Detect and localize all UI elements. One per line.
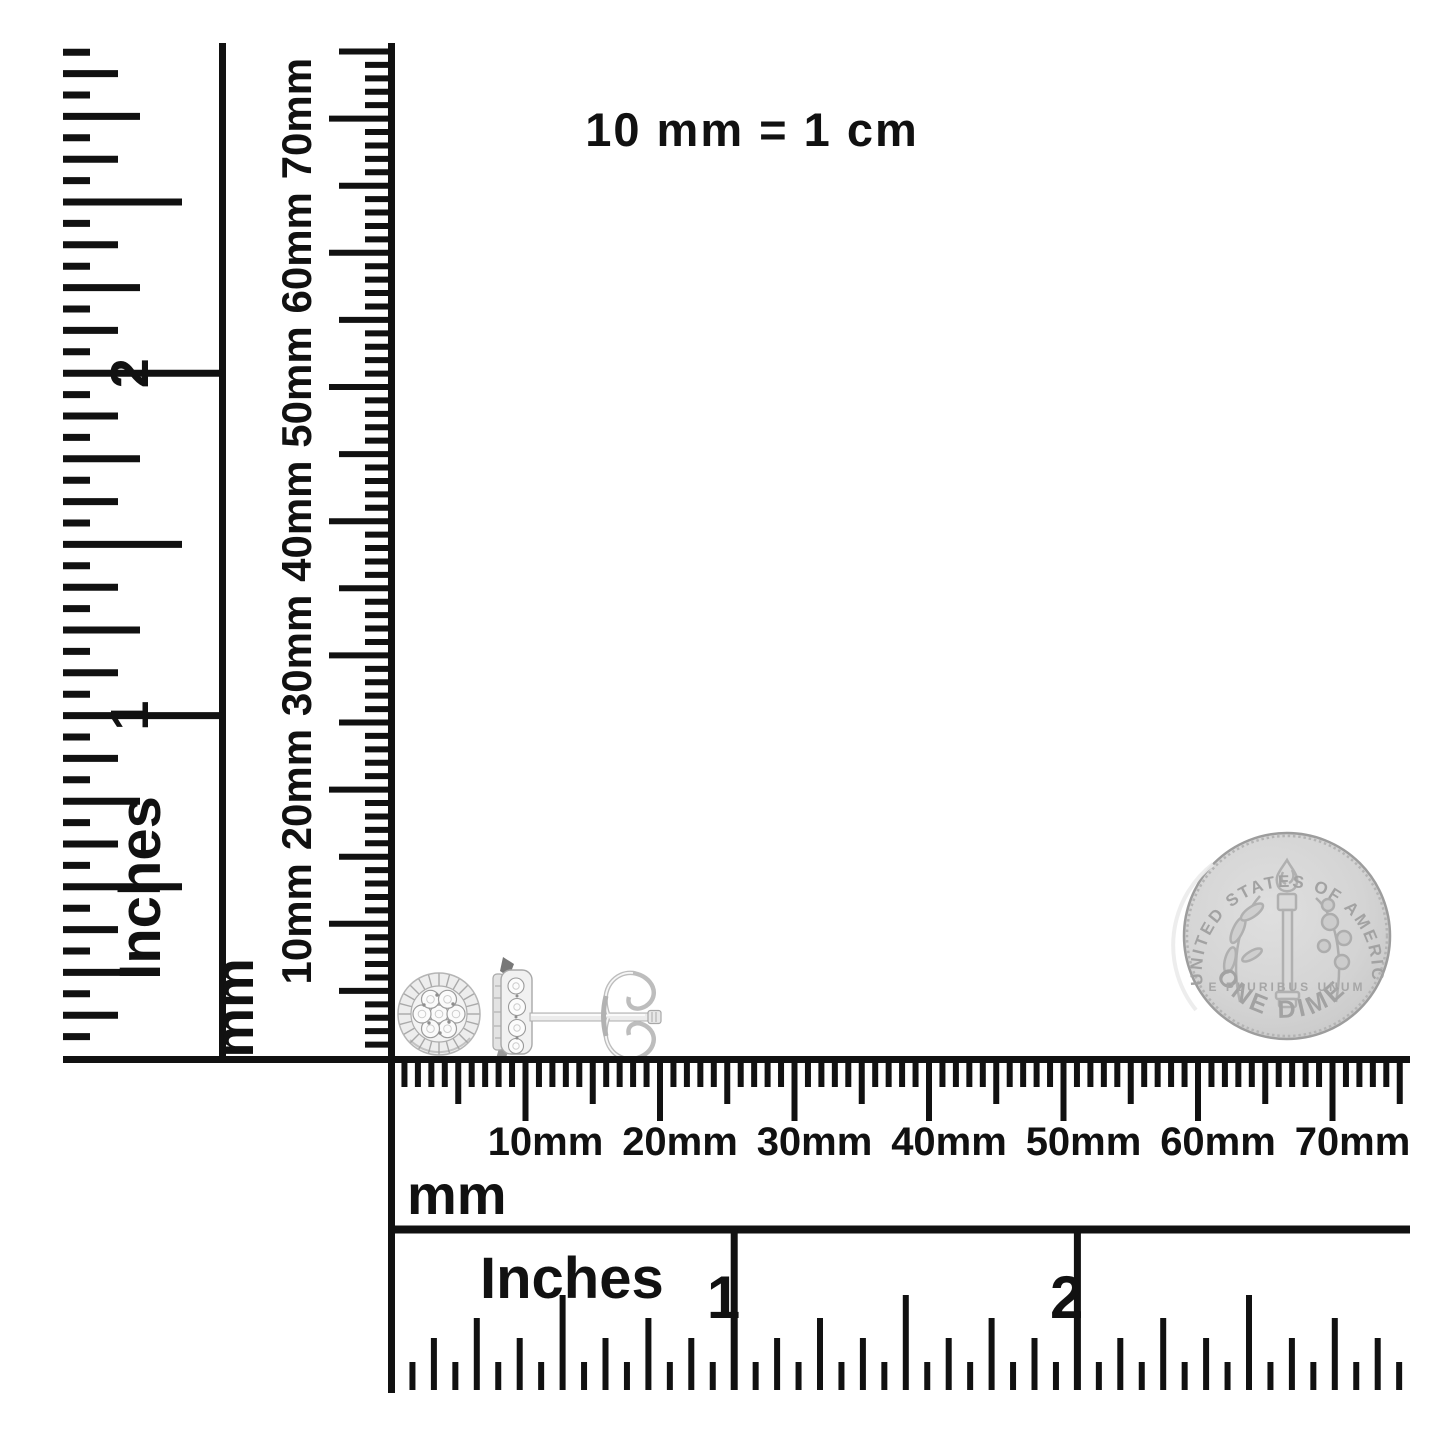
ruler-label: 50mm <box>273 326 320 447</box>
vertical-mm-ruler: 10mm20mm30mm40mm50mm60mm70mm mm <box>202 43 392 1393</box>
ruler-label: 20mm <box>273 729 320 850</box>
earring-side-view <box>493 957 661 1063</box>
round-diamond <box>508 978 524 994</box>
round-diamond <box>509 999 526 1016</box>
scene: UNITED STATES OF AMERICA ONE DIME E PLUR… <box>0 0 1445 1445</box>
diamond-speck <box>438 1031 441 1034</box>
unit-label: Inches <box>108 796 173 980</box>
ruler-label: 20mm <box>622 1120 738 1164</box>
left-inches-ruler: 12 Inches <box>63 43 223 1062</box>
ruler-label: 70mm <box>1295 1120 1411 1164</box>
ruler-label: 70mm <box>273 58 320 179</box>
round-diamond <box>509 1039 524 1054</box>
round-diamond <box>439 990 457 1008</box>
earrings-photo <box>398 957 661 1063</box>
post-tip <box>648 1011 661 1024</box>
product-scale-image: UNITED STATES OF AMERICA ONE DIME E PLUR… <box>0 0 1445 1445</box>
diamond-speck <box>516 995 519 998</box>
diamond-speck <box>435 993 438 996</box>
bottom-inches-ruler: 12 Inches <box>391 1229 1410 1390</box>
coin-motto: E PLURIBUS UNUM <box>1208 980 1365 994</box>
diamond-speck <box>515 1016 518 1019</box>
diamond-speck <box>516 1037 519 1040</box>
ruler-label: 30mm <box>273 595 320 716</box>
ruler-label: 40mm <box>273 460 320 581</box>
scale-note: 10 mm = 1 cm <box>585 103 919 156</box>
diamond-speck <box>422 1003 425 1006</box>
ruler-label: 2 <box>100 358 160 388</box>
ruler-label: 10mm <box>488 1120 604 1164</box>
unit-label: mm <box>202 958 265 1058</box>
tick-group: 10mm20mm30mm40mm50mm60mm70mm <box>273 52 391 1045</box>
earring-front-view <box>398 973 480 1055</box>
diamond-speck <box>451 1002 454 1005</box>
ruler-label: 10mm <box>273 863 320 984</box>
round-diamond <box>509 1020 526 1037</box>
ruler-label: 40mm <box>891 1120 1007 1164</box>
ruler-label: 60mm <box>273 192 320 313</box>
unit-label: mm <box>407 1163 507 1226</box>
ruler-label: 50mm <box>1026 1120 1142 1164</box>
horizontal-mm-ruler: 10mm20mm30mm40mm50mm60mm70mm mm <box>63 1059 1410 1226</box>
ruler-label: 1 <box>707 1264 740 1331</box>
diamond-speck <box>427 1021 430 1024</box>
diamond-speck <box>447 1020 450 1023</box>
ruler-label: 2 <box>1050 1264 1083 1331</box>
tick-group: 10mm20mm30mm40mm50mm60mm70mm <box>404 1059 1410 1164</box>
ruler-label: 60mm <box>1160 1120 1276 1164</box>
ruler-label: 1 <box>100 701 160 731</box>
unit-label: Inches <box>480 1246 664 1311</box>
ruler-label: 30mm <box>757 1120 873 1164</box>
